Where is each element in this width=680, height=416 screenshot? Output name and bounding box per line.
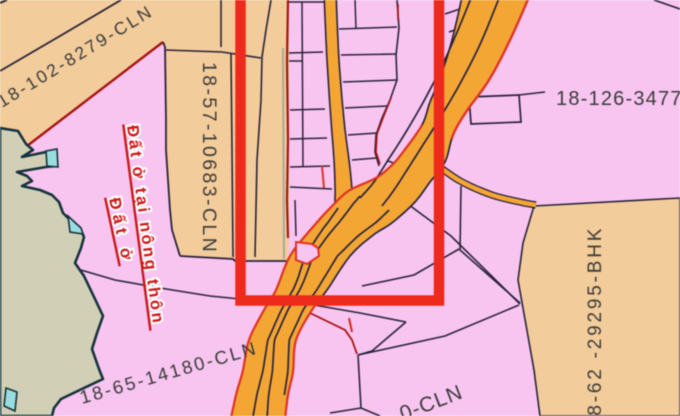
svg-text:18-62 -29295-BHK: 18-62 -29295-BHK [585,226,606,416]
svg-text:18-57-10683-CLN: 18-57-10683-CLN [198,62,220,254]
svg-text:18-126-3477: 18-126-3477 [556,88,680,110]
